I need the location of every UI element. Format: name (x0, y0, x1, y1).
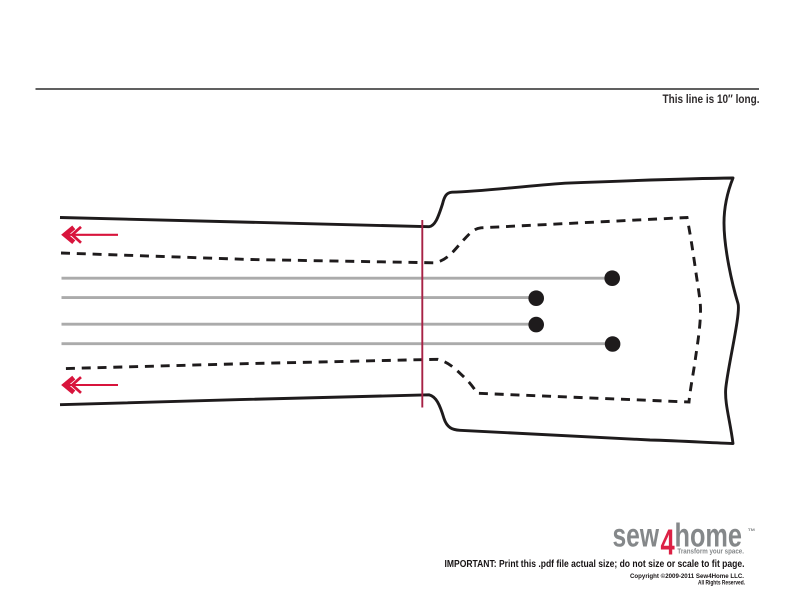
svg-text:4: 4 (661, 522, 676, 563)
svg-text:Transform your space.: Transform your space. (677, 548, 744, 555)
svg-text:All Rights Reserved.: All Rights Reserved. (698, 580, 745, 587)
svg-text:™: ™ (748, 527, 756, 536)
svg-text:sew: sew (613, 517, 660, 554)
svg-text:IMPORTANT: Print this .pdf fil: IMPORTANT: Print this .pdf file actual s… (445, 559, 745, 570)
svg-text:This line is 10″ long.: This line is 10″ long. (663, 92, 760, 106)
